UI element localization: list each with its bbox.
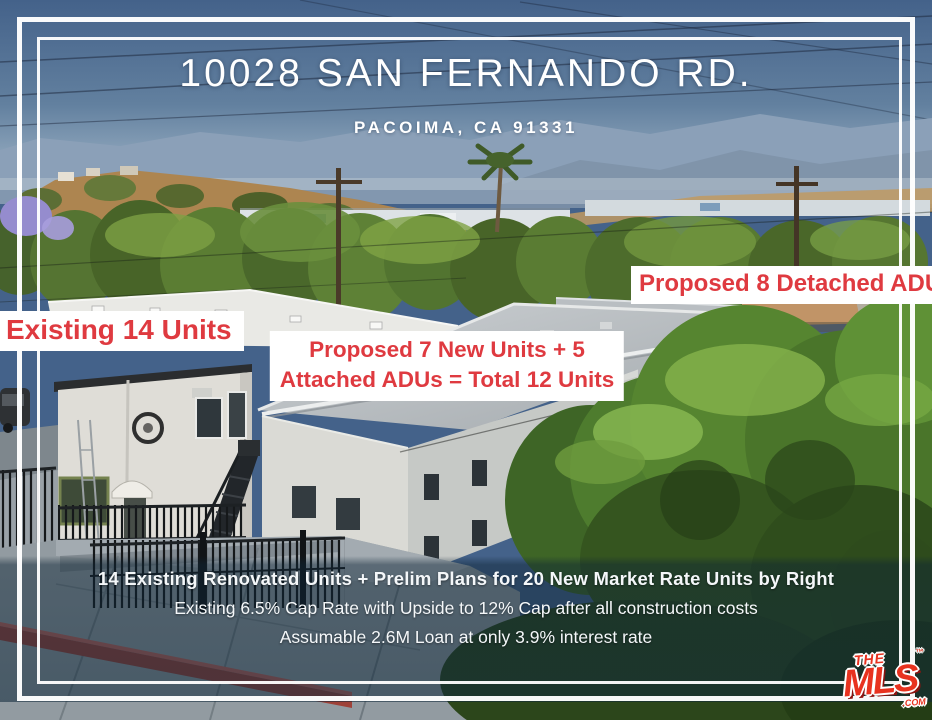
trademark-symbol: ™ [915, 647, 924, 657]
highlight-loan-line: Assumable 2.6M Loan at only 3.9% interes… [0, 627, 932, 648]
themls-logo-com: .COM [902, 696, 926, 708]
highlight-caprate-line: Existing 6.5% Cap Rate with Upside to 12… [0, 598, 932, 619]
themls-logo: THE ™ MLS .COM [837, 646, 928, 719]
label-proposed-attached-adus: Proposed 7 New Units + 5 Attached ADUs =… [270, 331, 624, 401]
label-proposed-detached-adus: Proposed 8 Detached ADUs [631, 266, 932, 304]
property-city-subtitle: PACOIMA, CA 91331 [0, 118, 932, 138]
deal-highlights: 14 Existing Renovated Units + Prelim Pla… [0, 568, 932, 648]
label-proposed-line1: Proposed 7 New Units + 5 [280, 335, 614, 365]
listing-flyer: 10028 SAN FERNANDO RD. PACOIMA, CA 91331… [0, 0, 932, 720]
label-existing-units: Existing 14 Units [0, 311, 244, 351]
label-proposed-line2: Attached ADUs = Total 12 Units [280, 365, 614, 395]
parked-car [0, 388, 30, 426]
highlight-units-line: 14 Existing Renovated Units + Prelim Pla… [0, 568, 932, 590]
header: 10028 SAN FERNANDO RD. PACOIMA, CA 91331 [0, 52, 932, 138]
property-address-title: 10028 SAN FERNANDO RD. [0, 52, 932, 96]
